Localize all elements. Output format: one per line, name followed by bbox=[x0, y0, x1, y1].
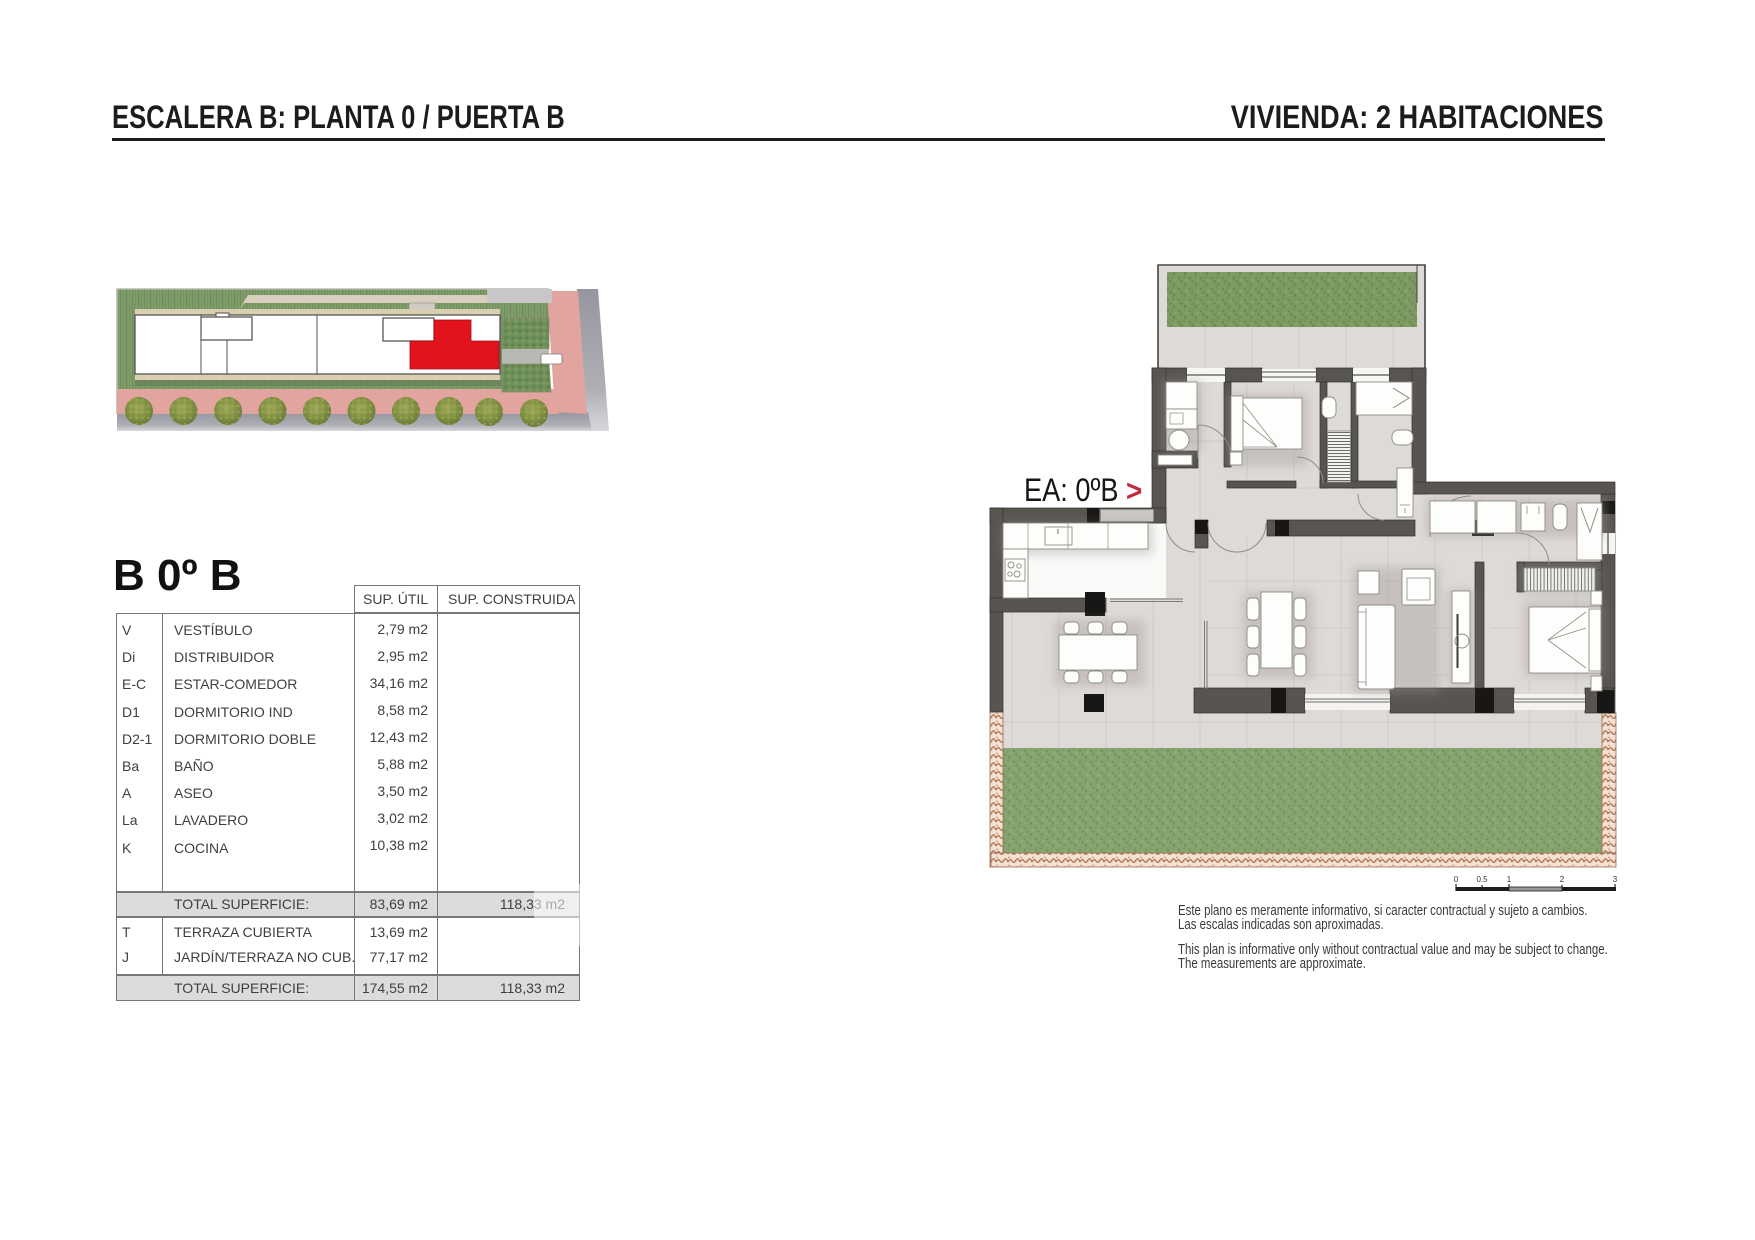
svg-text:0: 0 bbox=[1454, 875, 1459, 884]
svg-text:EA: 0ºB: EA: 0ºB bbox=[1024, 473, 1119, 509]
svg-text:1: 1 bbox=[1507, 875, 1512, 884]
svg-text:3: 3 bbox=[1613, 875, 1618, 884]
svg-text:>: > bbox=[1126, 474, 1142, 509]
svg-text:0.5: 0.5 bbox=[1476, 875, 1488, 884]
svg-text:2: 2 bbox=[1560, 875, 1565, 884]
